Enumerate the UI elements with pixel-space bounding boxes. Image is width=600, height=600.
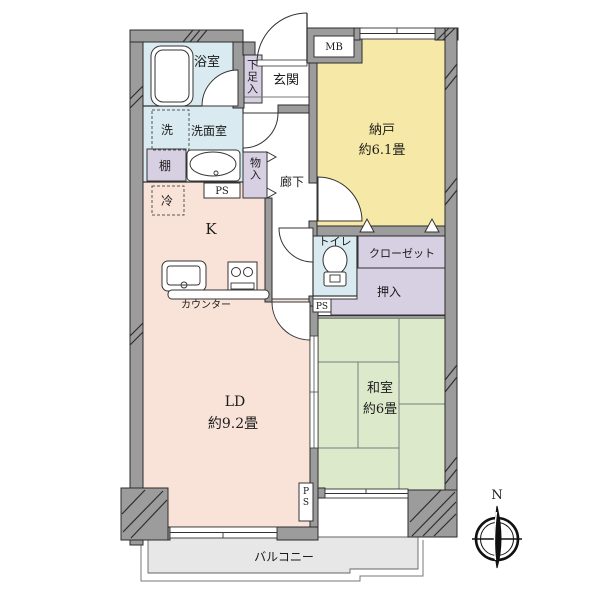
label-shelf: 棚	[159, 158, 171, 173]
wall-top	[130, 30, 243, 42]
label-meter-box: MB	[325, 42, 343, 53]
wall-entry-stub	[243, 42, 255, 55]
floor-plan: 浴室 洗面室 洗 棚 冷 K カウンター 玄関 下足入 MB 納戸 約6.1畳 …	[0, 0, 600, 600]
label-cabinet: 物入	[249, 156, 262, 181]
storage-window	[360, 28, 435, 39]
japanese-room-window	[325, 489, 408, 498]
label-japanese-room-size: 約6畳	[363, 402, 397, 417]
wall-right	[445, 28, 457, 497]
label-fridge: 冷	[161, 194, 173, 208]
washbasin-icon	[187, 150, 240, 181]
label-pipe-space-1: PS	[215, 186, 229, 197]
label-shoe-cabinet: 下足入	[246, 59, 259, 95]
sliding-partition	[310, 336, 318, 448]
label-bathroom: 浴室	[194, 54, 220, 70]
label-washer: 洗	[161, 123, 173, 137]
label-toilet: トイレ	[319, 235, 352, 248]
label-kitchen: K	[205, 220, 217, 238]
ld-window	[170, 527, 277, 538]
wall-storage-left-upper	[309, 63, 317, 183]
toilet-icon	[323, 246, 347, 286]
label-washroom: 洗面室	[191, 123, 227, 138]
label-north: N	[491, 488, 502, 503]
pillar-bottom-left	[121, 488, 168, 540]
stove-icon	[228, 262, 257, 291]
label-pipe-space-3: PS	[301, 487, 311, 509]
bathtub-icon	[151, 46, 193, 106]
label-living-dining-size: 約9.2畳	[208, 416, 258, 432]
wall-storage-top-left	[354, 28, 360, 40]
label-pipe-space-2: PS	[316, 302, 328, 312]
wall-kitchen-hall	[265, 198, 272, 302]
wall-left	[130, 30, 143, 545]
label-storage-room: 納戸	[369, 123, 395, 138]
label-balcony: バルコニー	[254, 550, 314, 564]
label-closet: クローゼット	[369, 247, 435, 260]
wall-japanese-bottom-stub	[318, 488, 325, 498]
kitchen-sink-icon	[162, 261, 206, 291]
wall-ld-bottom-right	[277, 527, 318, 540]
label-entrance: 玄関	[273, 73, 299, 88]
label-japanese-room: 和室	[367, 380, 393, 396]
counter-icon	[168, 290, 269, 299]
label-storage-room-size: 約6.1畳	[359, 143, 406, 158]
label-hallway: 廊下	[280, 174, 304, 189]
label-oshiire: 押入	[377, 285, 401, 299]
label-counter: カウンター	[181, 299, 231, 311]
label-living-dining: LD	[225, 394, 246, 410]
